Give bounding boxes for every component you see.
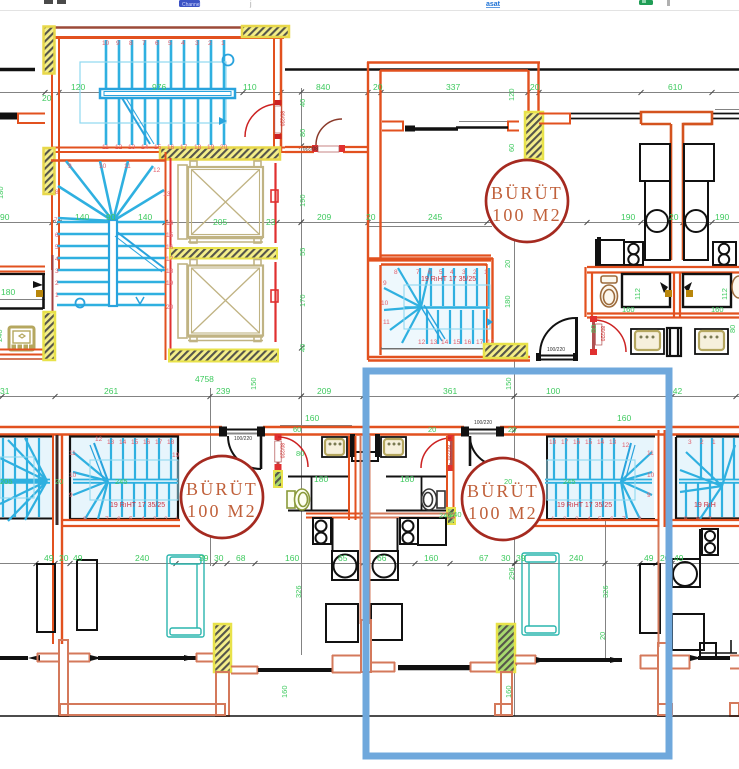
svg-text:18: 18 (167, 439, 175, 446)
svg-text:190: 190 (298, 194, 307, 207)
svg-text:326: 326 (601, 585, 610, 598)
svg-text:19: 19 (172, 452, 180, 459)
svg-text:16: 16 (167, 144, 175, 151)
svg-text:39: 39 (199, 553, 209, 563)
svg-text:20: 20 (55, 477, 63, 486)
svg-text:3: 3 (688, 439, 692, 446)
svg-text:20: 20 (366, 212, 376, 222)
svg-text:326: 326 (294, 585, 303, 598)
svg-text:66: 66 (377, 553, 387, 563)
svg-text:13: 13 (430, 339, 438, 346)
svg-text:40: 40 (298, 344, 307, 352)
svg-text:80: 80 (728, 325, 737, 333)
svg-text:11: 11 (383, 319, 390, 326)
svg-text:2: 2 (700, 439, 704, 446)
svg-text:49: 49 (44, 553, 54, 563)
svg-text:240: 240 (135, 553, 149, 563)
svg-text:14: 14 (441, 339, 449, 346)
svg-text:15: 15 (585, 439, 593, 446)
svg-text:68: 68 (236, 553, 246, 563)
svg-text:8: 8 (129, 40, 133, 47)
svg-text:20: 20 (373, 82, 383, 92)
svg-text:12: 12 (622, 442, 630, 449)
svg-text:160: 160 (504, 685, 513, 698)
svg-text:337: 337 (446, 82, 460, 92)
svg-text:80/220: 80/220 (279, 111, 285, 127)
svg-text:11: 11 (102, 144, 109, 151)
svg-text:239: 239 (216, 386, 230, 396)
svg-text:112: 112 (633, 288, 642, 300)
svg-text:12: 12 (153, 167, 161, 174)
svg-text:8: 8 (394, 269, 398, 276)
svg-text:100: 100 (546, 386, 560, 396)
svg-text:49: 49 (73, 553, 83, 563)
svg-text:180: 180 (503, 295, 512, 308)
svg-text:261: 261 (104, 386, 118, 396)
svg-text:20: 20 (59, 553, 69, 563)
svg-text:13: 13 (128, 144, 136, 151)
svg-text:10: 10 (69, 472, 77, 479)
svg-text:4758: 4758 (195, 374, 214, 384)
svg-text:17: 17 (155, 439, 163, 446)
svg-text:16: 16 (143, 439, 151, 446)
svg-text:6: 6 (55, 232, 59, 239)
svg-text:2: 2 (473, 269, 477, 276)
svg-text:205: 205 (0, 477, 13, 486)
svg-text:296: 296 (507, 567, 516, 580)
svg-text:100/220: 100/220 (547, 347, 565, 353)
svg-text:15: 15 (453, 339, 461, 346)
svg-text:19 RıH: 19 RıH (694, 502, 716, 509)
svg-text:120: 120 (507, 88, 516, 101)
svg-text:30: 30 (501, 553, 511, 563)
svg-text:18: 18 (166, 268, 174, 275)
svg-text:19: 19 (207, 144, 215, 151)
svg-text:55: 55 (298, 248, 307, 256)
svg-text:100/220: 100/220 (474, 420, 492, 426)
svg-text:15: 15 (166, 232, 174, 239)
svg-text:4: 4 (181, 40, 185, 47)
svg-text:14: 14 (141, 144, 149, 151)
svg-text:67: 67 (479, 553, 489, 563)
svg-text:16: 16 (464, 339, 472, 346)
svg-text:100 M2: 100 M2 (187, 501, 257, 521)
svg-text:asat: asat (486, 1, 501, 8)
svg-text:110: 110 (243, 82, 257, 92)
svg-text:23: 23 (266, 217, 276, 227)
svg-text:160: 160 (424, 553, 438, 563)
svg-text:140: 140 (75, 212, 89, 222)
svg-text:20: 20 (598, 632, 607, 640)
svg-text:1: 1 (221, 40, 225, 47)
svg-text:9: 9 (383, 280, 387, 287)
svg-text:20: 20 (166, 304, 174, 311)
svg-text:4: 4 (450, 269, 454, 276)
svg-text:140: 140 (138, 212, 152, 222)
svg-text:31: 31 (0, 386, 10, 396)
svg-text:12: 12 (95, 436, 103, 443)
svg-text:90: 90 (0, 212, 10, 222)
svg-text:3: 3 (55, 268, 59, 275)
svg-text:15: 15 (154, 144, 162, 151)
svg-text:840: 840 (316, 82, 330, 92)
svg-text:100/220: 100/220 (234, 436, 252, 442)
svg-text:20: 20 (530, 82, 540, 92)
svg-text:100 M2: 100 M2 (468, 503, 538, 523)
svg-text:BÜRÜT: BÜRÜT (491, 183, 563, 203)
svg-text:19 RıHT 17 35/25: 19 RıHT 17 35/25 (110, 502, 165, 509)
svg-text:180: 180 (0, 186, 5, 199)
svg-text:160: 160 (617, 413, 631, 423)
svg-text:12: 12 (418, 339, 426, 346)
svg-text:209: 209 (317, 212, 331, 222)
svg-text:80: 80 (296, 449, 304, 458)
svg-text:245: 245 (563, 477, 576, 486)
svg-text:5: 5 (168, 40, 172, 47)
svg-text:18: 18 (549, 439, 557, 446)
svg-text:240: 240 (0, 329, 4, 342)
svg-text:9: 9 (647, 492, 651, 499)
svg-text:160: 160 (711, 305, 724, 314)
svg-text:65: 65 (338, 553, 348, 563)
svg-text:240: 240 (449, 510, 462, 519)
svg-text:8: 8 (55, 189, 59, 196)
svg-text:20: 20 (669, 212, 679, 222)
svg-text:240: 240 (569, 553, 583, 563)
svg-text:160: 160 (622, 305, 635, 314)
svg-text:17: 17 (476, 339, 484, 346)
svg-text:20: 20 (503, 260, 512, 268)
svg-text:1: 1 (484, 269, 488, 276)
svg-text:80: 80 (589, 325, 598, 333)
svg-text:9: 9 (68, 163, 72, 170)
svg-text:3: 3 (462, 269, 466, 276)
svg-text:9: 9 (69, 492, 73, 499)
svg-text:120: 120 (71, 82, 85, 92)
svg-text:BÜRÜT: BÜRÜT (467, 481, 539, 501)
svg-text:14: 14 (119, 439, 127, 446)
svg-text:100 M2: 100 M2 (492, 205, 562, 225)
svg-text:11: 11 (124, 163, 131, 170)
svg-text:10: 10 (381, 300, 389, 307)
svg-text:14: 14 (597, 439, 605, 446)
svg-text:5: 5 (55, 244, 59, 251)
svg-text:112: 112 (720, 288, 729, 300)
svg-text:14: 14 (166, 220, 174, 227)
svg-text:19: 19 (166, 280, 174, 287)
svg-text:20: 20 (508, 425, 516, 434)
svg-text:20: 20 (428, 425, 436, 434)
svg-text:80/220: 80/220 (599, 326, 605, 342)
svg-text:6: 6 (155, 40, 159, 47)
svg-text:Channel: Channel (182, 2, 201, 8)
svg-text:20: 20 (42, 93, 52, 103)
svg-text:13: 13 (163, 191, 171, 198)
svg-text:361: 361 (443, 386, 457, 396)
svg-text:60: 60 (293, 425, 301, 434)
svg-text:90: 90 (106, 212, 116, 222)
svg-text:BÜRÜT: BÜRÜT (186, 479, 258, 499)
svg-text:17: 17 (166, 256, 174, 263)
svg-text:5: 5 (439, 269, 443, 276)
svg-text:20: 20 (504, 477, 512, 486)
svg-text:1: 1 (55, 292, 59, 299)
svg-text:80/220: 80/220 (279, 443, 285, 459)
svg-text:11: 11 (69, 450, 76, 457)
svg-text:11: 11 (647, 450, 654, 457)
svg-text:80/220: 80/220 (302, 145, 318, 151)
svg-text:49: 49 (674, 553, 684, 563)
svg-text:10: 10 (647, 472, 655, 479)
svg-text:2: 2 (55, 280, 59, 287)
svg-text:12: 12 (115, 144, 123, 151)
svg-text:30: 30 (214, 553, 224, 563)
svg-text:160: 160 (305, 413, 319, 423)
svg-text:180: 180 (1, 287, 15, 297)
svg-text:13: 13 (107, 439, 115, 446)
svg-text:610: 610 (668, 82, 682, 92)
svg-text:9: 9 (116, 40, 120, 47)
svg-text:80: 80 (298, 129, 307, 137)
svg-text:49: 49 (644, 553, 654, 563)
svg-text:150: 150 (504, 377, 513, 390)
svg-text:7: 7 (142, 40, 146, 47)
svg-text:150: 150 (249, 377, 258, 390)
svg-text:16: 16 (166, 244, 174, 251)
svg-text:190: 190 (621, 212, 635, 222)
svg-text:39: 39 (516, 553, 526, 563)
svg-text:205: 205 (213, 217, 227, 227)
svg-text:1: 1 (712, 439, 716, 446)
svg-text:976: 976 (152, 82, 166, 92)
svg-text:6: 6 (428, 269, 432, 276)
svg-text:160: 160 (285, 553, 299, 563)
svg-text:2: 2 (208, 40, 212, 47)
svg-text:4: 4 (55, 256, 59, 263)
svg-text:180: 180 (400, 474, 414, 484)
svg-text:245: 245 (115, 477, 128, 486)
svg-text:20: 20 (220, 144, 228, 151)
svg-text:3: 3 (195, 40, 199, 47)
svg-text:j: j (249, 1, 252, 8)
svg-text:10: 10 (99, 163, 107, 170)
svg-text:40: 40 (298, 99, 307, 107)
svg-text:180: 180 (314, 474, 328, 484)
svg-text:209: 209 (317, 386, 331, 396)
svg-text:16: 16 (573, 439, 581, 446)
svg-text:160: 160 (280, 685, 289, 698)
svg-text:17: 17 (561, 439, 569, 446)
svg-text:60: 60 (507, 144, 516, 152)
svg-text:17: 17 (180, 144, 188, 151)
svg-text:19 RıHT 17 35/25: 19 RıHT 17 35/25 (421, 276, 476, 283)
svg-text:190: 190 (715, 212, 729, 222)
svg-text:10: 10 (102, 40, 110, 47)
svg-text:245: 245 (428, 212, 442, 222)
svg-text:7: 7 (54, 217, 58, 224)
svg-text:170: 170 (298, 294, 307, 307)
svg-text:18: 18 (194, 144, 202, 151)
svg-text:7: 7 (416, 269, 420, 276)
svg-text:13: 13 (609, 439, 617, 446)
svg-text:19 RıHT 17 35/25: 19 RıHT 17 35/25 (557, 502, 612, 509)
svg-text:15: 15 (131, 439, 139, 446)
